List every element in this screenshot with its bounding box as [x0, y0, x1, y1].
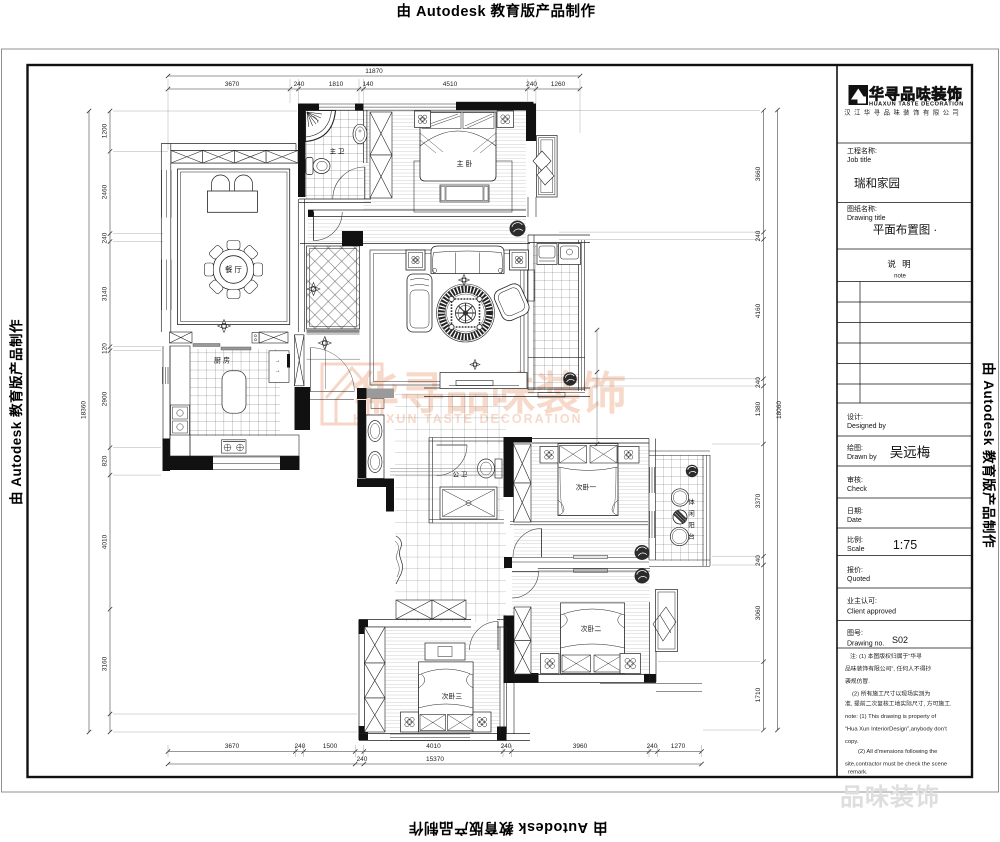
svg-text:1270: 1270	[671, 743, 686, 750]
svg-text:3060: 3060	[755, 605, 762, 620]
svg-text:240: 240	[755, 377, 762, 388]
svg-text:1500: 1500	[323, 743, 338, 750]
svg-text:Drawing no.: Drawing no.	[847, 641, 884, 648]
svg-text:240: 240	[295, 743, 306, 750]
svg-text:日期:: 日期:	[847, 507, 863, 515]
svg-text:Job title: Job title	[847, 157, 871, 164]
svg-text:18060: 18060	[776, 401, 783, 419]
svg-text:→: →	[275, 358, 281, 364]
svg-text:S02: S02	[892, 635, 908, 645]
svg-text:1:75: 1:75	[893, 538, 917, 552]
svg-text:240: 240	[755, 555, 762, 566]
svg-text:remark.: remark.	[848, 770, 868, 776]
svg-text:体: 体	[688, 497, 695, 506]
svg-text:主 卫: 主 卫	[330, 147, 345, 156]
svg-text:Scale: Scale	[847, 546, 865, 553]
svg-text:2460: 2460	[102, 184, 109, 199]
svg-text:审核:: 审核:	[847, 475, 863, 484]
svg-text:copy.: copy.	[845, 739, 859, 745]
svg-text:汉 江 华 寻 品 味 装 饰 有 限 公 司: 汉 江 华 寻 品 味 装 饰 有 限 公 司	[844, 108, 960, 117]
svg-text:3140: 3140	[102, 286, 109, 301]
svg-text:4160: 4160	[755, 303, 762, 318]
svg-text:Date: Date	[847, 517, 862, 524]
svg-text:主 卧: 主 卧	[457, 159, 473, 168]
svg-text:闲: 闲	[688, 509, 695, 518]
svg-text:240: 240	[526, 81, 537, 88]
svg-text:3670: 3670	[225, 81, 240, 88]
svg-text:厨 房: 厨 房	[214, 356, 230, 365]
svg-text:次卧三: 次卧三	[442, 692, 463, 701]
svg-text:1200: 1200	[102, 123, 109, 138]
svg-text:图号:: 图号:	[847, 629, 863, 637]
svg-text:绘图:: 绘图:	[847, 443, 863, 452]
svg-text:3660: 3660	[755, 166, 762, 181]
svg-text:120: 120	[102, 343, 109, 354]
svg-text:设计:: 设计:	[847, 412, 863, 421]
svg-text:品味装饰: 品味装饰	[840, 784, 940, 811]
svg-text:4010: 4010	[426, 743, 441, 750]
svg-text:1710: 1710	[755, 687, 762, 702]
svg-text:HUAXUN TASTE DECORATION: HUAXUN TASTE DECORATION	[869, 102, 964, 108]
svg-text:Quoted: Quoted	[847, 576, 870, 583]
svg-text:工程名称:: 工程名称:	[847, 146, 877, 155]
svg-text:820: 820	[102, 455, 109, 466]
svg-text:3160: 3160	[102, 656, 109, 671]
svg-text:240: 240	[102, 232, 109, 243]
svg-text:18360: 18360	[81, 401, 88, 419]
svg-text:240: 240	[647, 743, 658, 750]
svg-text:公 卫: 公 卫	[453, 471, 468, 479]
svg-text:平面布置图 ·: 平面布置图 ·	[873, 224, 938, 237]
svg-text:准, 提前二次复核工地实际尺寸, 方可施工.: 准, 提前二次复核工地实际尺寸, 方可施工.	[845, 700, 952, 708]
svg-text:→: →	[275, 368, 281, 374]
svg-text:瑞和家园: 瑞和家园	[854, 176, 900, 190]
svg-text:华寻品味装饰: 华寻品味装饰	[869, 85, 963, 103]
svg-text:1380: 1380	[755, 401, 762, 416]
svg-text:(2) 所有施工尺寸以现场实测为: (2) 所有施工尺寸以现场实测为	[852, 690, 930, 698]
svg-text:业主认可:: 业主认可:	[847, 596, 877, 605]
svg-text:(2) All d'mensions following t: (2) All d'mensions following the	[858, 749, 937, 755]
svg-text:由 Autodesk 教育版产品制作: 由 Autodesk 教育版产品制作	[8, 319, 24, 505]
svg-text:报价:: 报价:	[847, 565, 863, 574]
svg-text:Drawn by: Drawn by	[847, 454, 877, 461]
svg-text:说 明: 说 明	[887, 259, 912, 269]
svg-text:比例:: 比例:	[847, 535, 863, 544]
svg-text:site,contractor must be check: site,contractor must be check the scene	[845, 762, 947, 768]
svg-text:餐 厅: 餐 厅	[225, 265, 243, 274]
svg-text:“Hua Xun InteriorDesign”,anybo: “Hua Xun InteriorDesign”,anybody don‘t	[845, 727, 947, 733]
svg-text:3370: 3370	[755, 493, 762, 508]
svg-text:4510: 4510	[443, 81, 458, 88]
svg-text:Check: Check	[847, 486, 867, 493]
svg-text:note: note	[894, 274, 906, 280]
svg-text:3960: 3960	[573, 743, 588, 750]
svg-text:品味装饰有限公司”, 任何人不得抄: 品味装饰有限公司”, 任何人不得抄	[845, 665, 932, 673]
svg-text:4010: 4010	[102, 534, 109, 549]
svg-text:2900: 2900	[102, 391, 109, 406]
svg-text:阳: 阳	[688, 520, 695, 529]
svg-text:由 Autodesk 教育版产品制作: 由 Autodesk 教育版产品制作	[396, 2, 595, 20]
svg-text:240: 240	[755, 230, 762, 241]
svg-text:15370: 15370	[426, 756, 444, 763]
svg-text:240: 240	[501, 743, 512, 750]
svg-text:240: 240	[294, 81, 305, 88]
svg-text:11870: 11870	[365, 68, 383, 75]
svg-text:台: 台	[688, 532, 695, 541]
svg-text:140: 140	[363, 81, 374, 88]
svg-text:袭规仿冒.: 袭规仿冒.	[845, 677, 870, 685]
svg-text:吴远梅: 吴远梅	[890, 445, 931, 460]
svg-text:Designed by: Designed by	[847, 423, 886, 430]
svg-text:3670: 3670	[225, 743, 240, 750]
svg-text:由 Autodesk 教育版产品制作: 由 Autodesk 教育版产品制作	[981, 362, 997, 548]
svg-text:note: (1) This drawing is pro: note: (1) This drawing is property of	[845, 714, 936, 720]
svg-text:Client approved: Client approved	[847, 609, 896, 616]
svg-text:次卧一: 次卧一	[576, 483, 597, 492]
svg-text:注: (1) 本图版权归属于“华寻: 注: (1) 本图版权归属于“华寻	[850, 652, 922, 660]
svg-text:240: 240	[357, 756, 368, 763]
svg-text:图纸名称:: 图纸名称:	[847, 204, 877, 213]
svg-text:1260: 1260	[551, 81, 566, 88]
svg-text:次卧二: 次卧二	[581, 624, 602, 633]
svg-text:由 Autodesk 教育版产品制作: 由 Autodesk 教育版产品制作	[408, 819, 607, 837]
svg-text:1810: 1810	[329, 81, 344, 88]
svg-text:Drawing title: Drawing title	[847, 215, 886, 222]
